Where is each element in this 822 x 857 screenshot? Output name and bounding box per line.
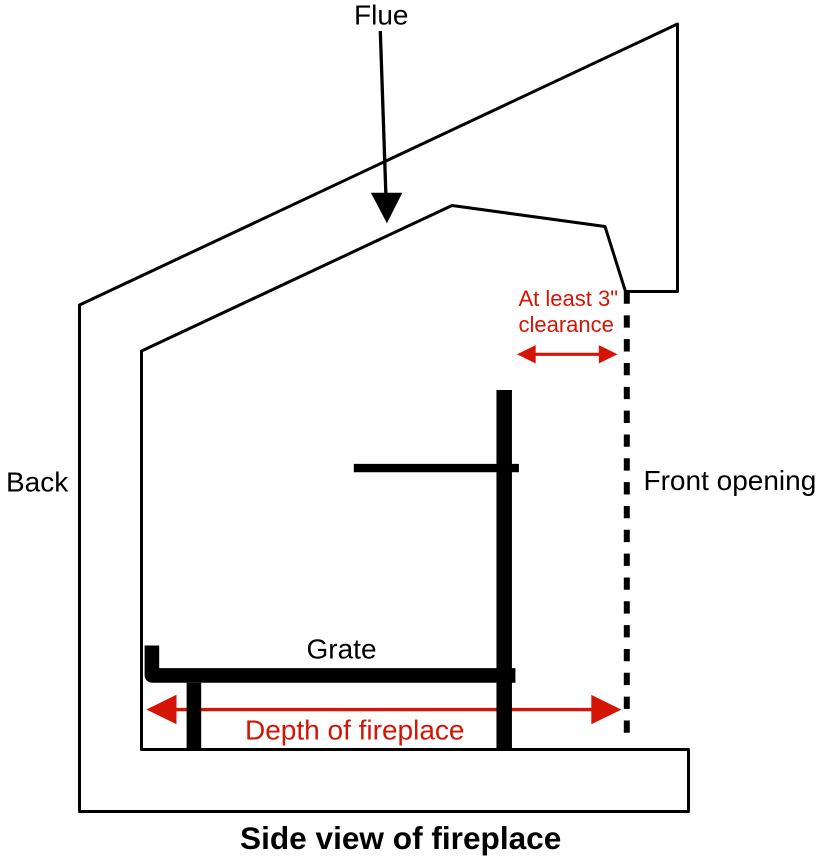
svg-text:Front opening: Front opening <box>644 465 817 496</box>
svg-text:Flue: Flue <box>354 0 408 31</box>
svg-text:Depth of fireplace: Depth of fireplace <box>245 714 464 745</box>
svg-text:Back: Back <box>6 466 69 497</box>
svg-text:At least 3": At least 3" <box>519 286 619 311</box>
svg-text:clearance: clearance <box>519 312 614 337</box>
svg-text:Grate: Grate <box>307 634 377 665</box>
svg-text:Side view of fireplace: Side view of fireplace <box>240 820 561 856</box>
